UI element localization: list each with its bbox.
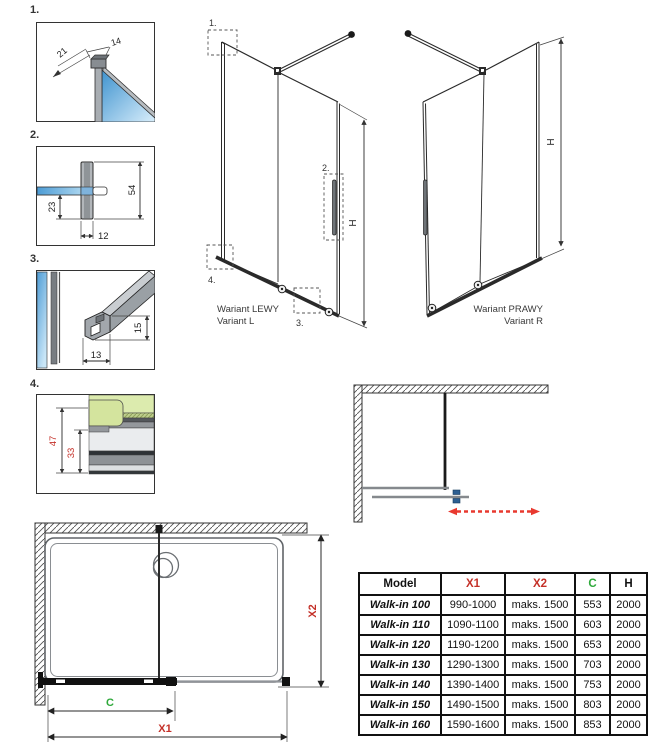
seal-layers-section xyxy=(89,395,154,474)
roller xyxy=(325,308,333,316)
variant-right-drawing: H Wariant PRAWY Variant R xyxy=(383,8,575,333)
top-wall xyxy=(35,523,307,533)
variant-left-title: Wariant LEWY xyxy=(217,304,280,315)
callout-3: 3. xyxy=(296,318,304,328)
c-value: 553 xyxy=(575,595,610,615)
detail-4-number: 4. xyxy=(30,378,39,390)
h-value: 2000 xyxy=(610,635,647,655)
x2-value: maks. 1500 xyxy=(505,635,575,655)
c-value: 653 xyxy=(575,635,610,655)
h-value: 2000 xyxy=(610,695,647,715)
callout-2: 2. xyxy=(322,163,330,173)
c-value: 603 xyxy=(575,615,610,635)
header-x1: X1 xyxy=(441,573,505,595)
table-header-row: Model X1 X2 C H xyxy=(359,573,647,595)
x2-value: maks. 1500 xyxy=(505,595,575,615)
sliding-panel xyxy=(423,72,484,315)
model-name: Walk-in 140 xyxy=(359,675,441,695)
model-name: Walk-in 160 xyxy=(359,715,441,735)
dim-12: 12 xyxy=(98,231,109,242)
dimension-x1: X1 xyxy=(48,691,287,742)
roller xyxy=(278,285,286,293)
support-bar xyxy=(274,31,355,75)
table-row: Walk-in 160 1590-1600 maks. 1500 853 200… xyxy=(359,715,647,735)
detail-3-number: 3. xyxy=(30,253,39,265)
c-value: 703 xyxy=(575,655,610,675)
sliding-panel xyxy=(278,72,340,314)
dim-c-label: C xyxy=(106,697,114,709)
dim-15: 15 xyxy=(133,323,144,334)
header-x2: X2 xyxy=(505,573,575,595)
x2-value: maks. 1500 xyxy=(505,615,575,635)
detail-callouts: 1. 2. 3. 4. xyxy=(207,18,343,328)
wall-anchor xyxy=(348,31,355,38)
dim-x1-label: X1 xyxy=(158,723,171,735)
detail-1-number: 1. xyxy=(30,4,39,16)
roller xyxy=(474,281,482,289)
dim-54: 54 xyxy=(127,185,138,196)
h-value: 2000 xyxy=(610,675,647,695)
callout-1: 1. xyxy=(209,18,217,28)
side-wall xyxy=(354,385,362,522)
dim-x2-label: X2 xyxy=(307,604,319,617)
header-c: C xyxy=(575,573,610,595)
shower-tray xyxy=(45,538,283,682)
x1-value: 1490-1500 xyxy=(441,695,505,715)
dim-h: H xyxy=(348,219,359,226)
model-name: Walk-in 130 xyxy=(359,655,441,675)
x1-value: 990-1000 xyxy=(441,595,505,615)
x2-value: maks. 1500 xyxy=(505,655,575,675)
wall-profile-plan xyxy=(38,672,43,688)
detail-4-drawing: 47 33 xyxy=(36,394,155,494)
wall-anchor xyxy=(405,30,412,37)
x1-value: 1390-1400 xyxy=(441,675,505,695)
dimension-x2: X2 xyxy=(278,535,329,687)
dim-33: 33 xyxy=(66,448,77,459)
plan-view-drawing: X2 C X1 xyxy=(20,515,352,750)
shower-spec-sheet: 1. 14 21 2. xyxy=(0,0,660,750)
door-handle xyxy=(333,180,337,235)
table-row: Walk-in 110 1090-1100 maks. 1500 603 200… xyxy=(359,615,647,635)
detail-2-number: 2. xyxy=(30,129,39,141)
h-value: 2000 xyxy=(610,715,647,735)
model-name: Walk-in 110 xyxy=(359,615,441,635)
table-row: Walk-in 130 1290-1300 maks. 1500 703 200… xyxy=(359,655,647,675)
dim-h: H xyxy=(546,138,557,145)
model-dimension-table: Model X1 X2 C H Walk-in 100 990-1000 mak… xyxy=(358,572,648,736)
variant-left-subtitle: Variant L xyxy=(217,316,254,327)
fixed-panel xyxy=(480,42,540,284)
top-wall xyxy=(355,385,548,393)
x1-value: 1290-1300 xyxy=(441,655,505,675)
table-row: Walk-in 140 1390-1400 maks. 1500 753 200… xyxy=(359,675,647,695)
dim-47: 47 xyxy=(48,436,59,447)
model-name: Walk-in 100 xyxy=(359,595,441,615)
header-h: H xyxy=(610,573,647,595)
x2-value: maks. 1500 xyxy=(505,675,575,695)
top-view-schematic xyxy=(345,378,560,528)
dim-13: 13 xyxy=(91,350,102,361)
c-value: 753 xyxy=(575,675,610,695)
c-value: 803 xyxy=(575,695,610,715)
x2-value: maks. 1500 xyxy=(505,715,575,735)
table-row: Walk-in 100 990-1000 maks. 1500 553 2000 xyxy=(359,595,647,615)
table-row: Walk-in 150 1490-1500 maks. 1500 803 200… xyxy=(359,695,647,715)
height-dimension: H xyxy=(540,37,564,259)
support-bar xyxy=(405,30,486,75)
x1-value: 1090-1100 xyxy=(441,615,505,635)
h-value: 2000 xyxy=(610,595,647,615)
x2-value: maks. 1500 xyxy=(505,695,575,715)
variant-right-subtitle: Variant R xyxy=(504,316,543,327)
fixed-panel xyxy=(222,42,279,284)
table-row: Walk-in 120 1190-1200 maks. 1500 653 200… xyxy=(359,635,647,655)
header-model: Model xyxy=(359,573,441,595)
variant-left-drawing: 1. 2. 3. 4. H Wariant LEWY Variant L xyxy=(200,8,375,333)
model-name: Walk-in 120 xyxy=(359,635,441,655)
dimension-c: C xyxy=(48,691,175,742)
variant-right-title: Wariant PRAWY xyxy=(473,304,543,315)
h-value: 2000 xyxy=(610,655,647,675)
slide-direction-arrow xyxy=(448,508,540,515)
detail-2-drawing: 54 23 12 xyxy=(36,146,155,246)
door-handle xyxy=(424,180,428,235)
dim-23: 23 xyxy=(47,202,58,213)
h-value: 2000 xyxy=(610,615,647,635)
x1-value: 1590-1600 xyxy=(441,715,505,735)
detail-1-drawing: 14 21 xyxy=(36,22,155,122)
detail-3-drawing: 15 13 xyxy=(36,270,155,370)
x1-value: 1190-1200 xyxy=(441,635,505,655)
model-name: Walk-in 150 xyxy=(359,695,441,715)
c-value: 853 xyxy=(575,715,610,735)
callout-4: 4. xyxy=(208,275,216,285)
roller xyxy=(428,304,436,312)
